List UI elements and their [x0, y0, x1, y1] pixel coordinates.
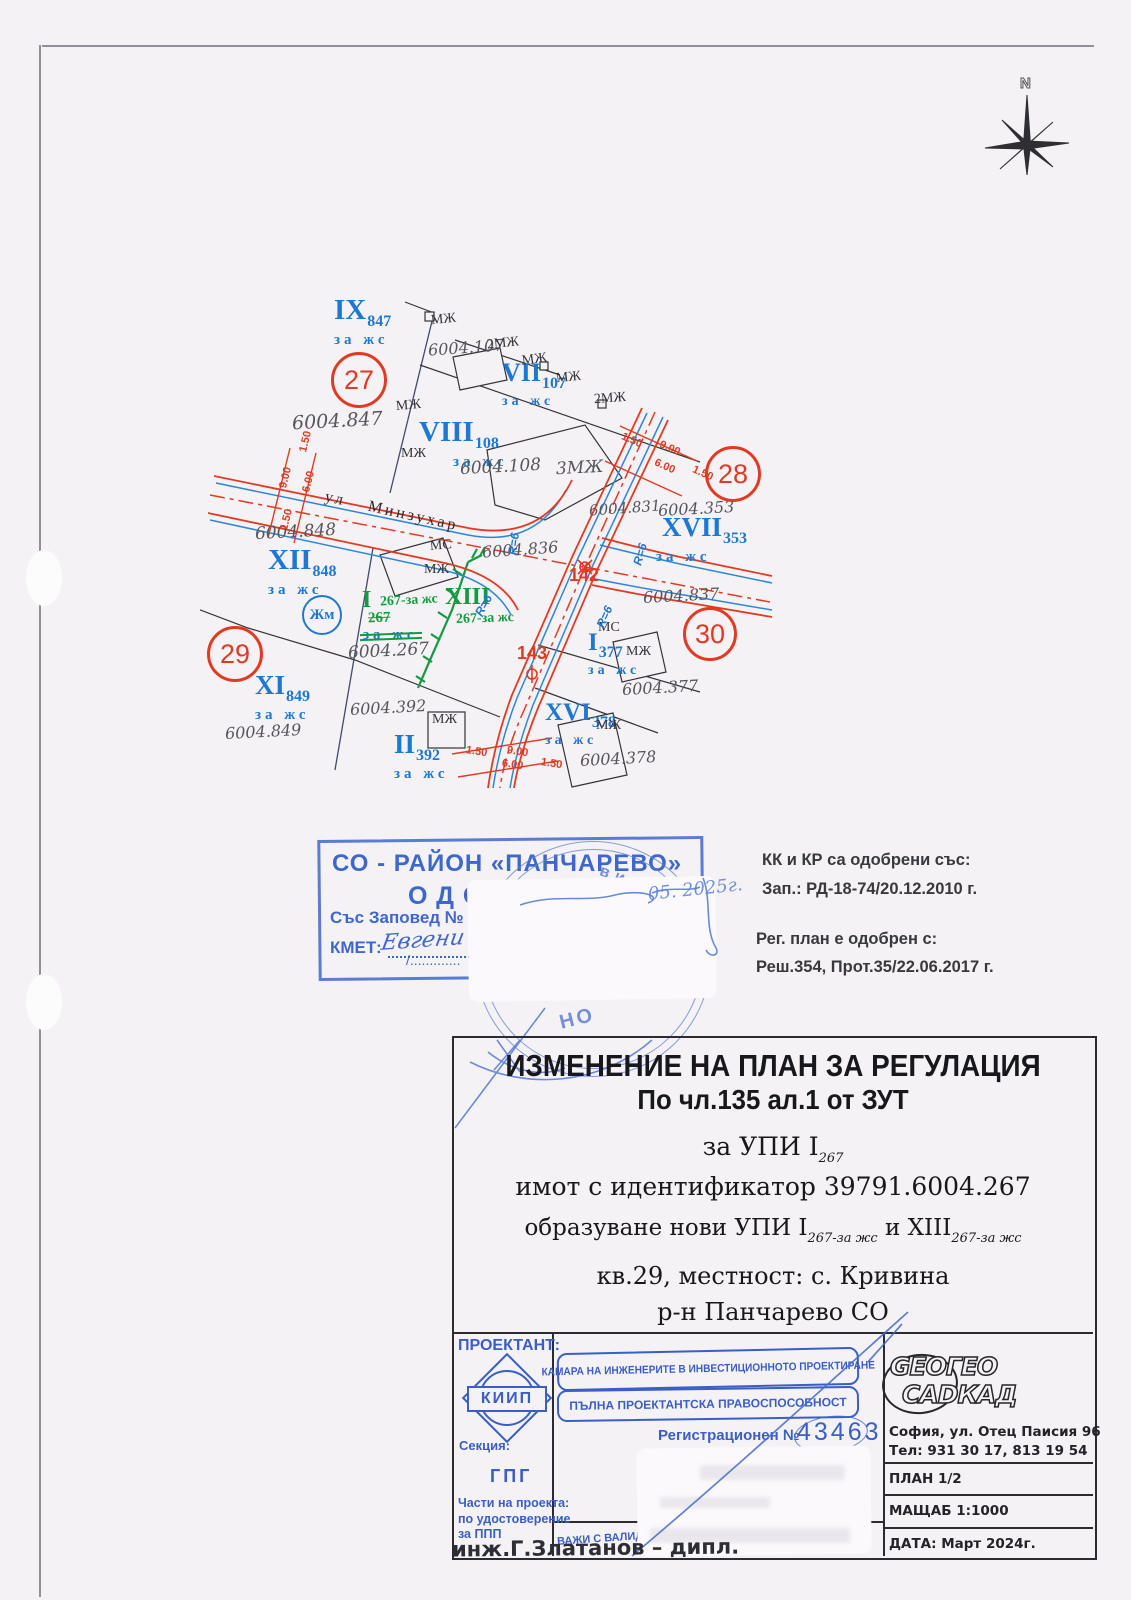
title-obraz-line: образуване нови УПИ I267-за жс и XIII267…	[452, 1215, 1094, 1246]
note-reg-line2: Реш.354, Прот.35/22.06.2017 г.	[756, 958, 994, 977]
title-main: ИЗМЕНЕНИЕ НА ПЛАН ЗА РЕГУЛАЦИЯ	[484, 1048, 1062, 1084]
note-kk-line1: КК и КР са одобрени със:	[762, 851, 970, 870]
plan-number: ПЛАН 1/2	[889, 1471, 962, 1487]
date-label: ДАТА: Март 2024г.	[889, 1536, 1036, 1552]
geocad-logo-line1: GEOГЕО	[890, 1352, 997, 1381]
title-upi-line: за УПИ I267	[452, 1132, 1094, 1166]
geocad-logo-line2: CADКАД	[902, 1380, 1017, 1409]
note-reg-line1: Рег. план е одобрен с:	[756, 930, 937, 949]
scale-label: МАЩАБ 1:1000	[889, 1503, 1009, 1519]
scanned-regulation-plan-sheet: N	[0, 0, 1131, 1600]
title-imot-line: имот с идентификатор 39791.6004.267	[452, 1172, 1094, 1201]
geocad-address: София, ул. Отец Паисия 96	[889, 1424, 1101, 1440]
note-kk-line2: Зап.: РД-18-74/20.12.2010 г.	[762, 880, 977, 899]
geocad-phone: Тел: 931 30 17, 813 19 54	[889, 1443, 1088, 1459]
title-sub: По чл.135 ал.1 от ЗУТ	[478, 1084, 1069, 1116]
engineer-signature-line: инж.Г.Златанов – дипл.	[452, 1534, 739, 1561]
